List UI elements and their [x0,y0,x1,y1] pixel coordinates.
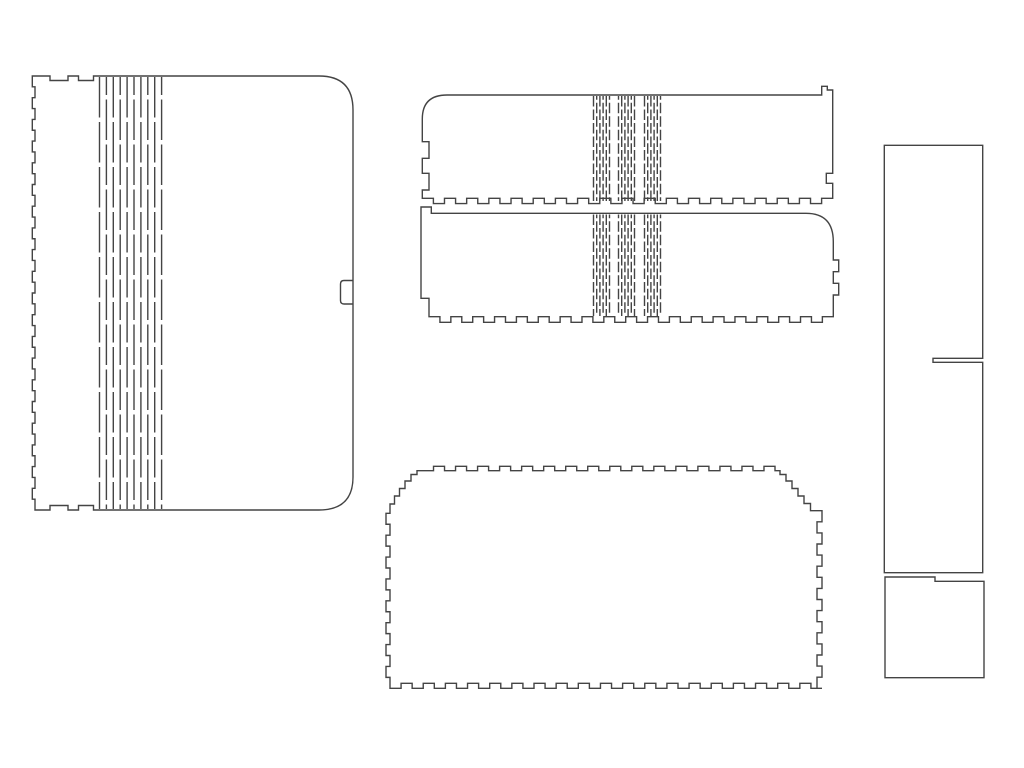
panel-outline [32,76,353,510]
panel-strip-panel-middle [421,207,839,322]
panel-wrap-panel-large [32,76,353,510]
panel-outline [884,145,982,572]
living-hinge-pattern [594,215,661,317]
panel-divider-panel-tall [884,145,982,572]
panel-small-square-panel [885,577,984,678]
panel-strip-panel-top [422,86,832,203]
laser-cut-sheet-stage [0,0,1024,768]
panel-outline [386,466,822,688]
panel-outline [885,577,984,678]
living-hinge-pattern [100,77,162,509]
laser-cut-sheet [0,0,1024,768]
living-hinge-pattern [594,96,661,201]
panel-outline [421,207,839,322]
panel-bottom-panel [386,466,822,688]
panel-cutout [341,281,353,305]
